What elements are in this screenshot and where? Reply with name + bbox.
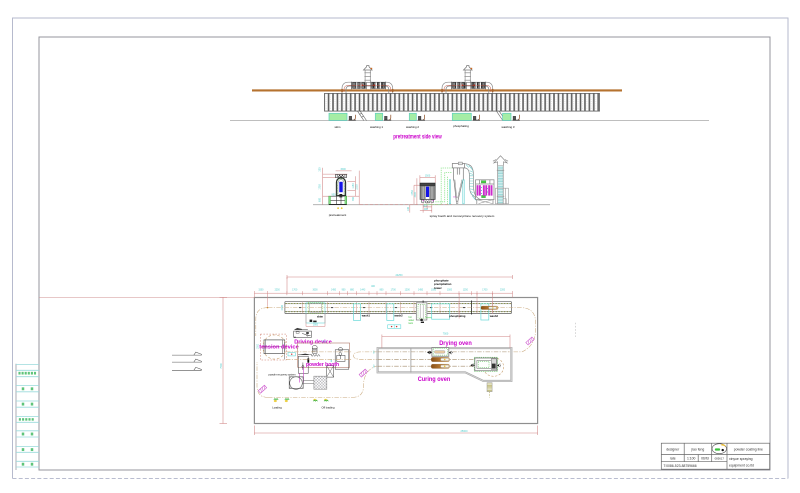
- svg-text:pretreatment: pretreatment: [329, 213, 347, 217]
- svg-text:1500: 1500: [425, 174, 431, 177]
- svg-text:Drying oven: Drying oven: [439, 340, 472, 347]
- svg-text:hot: hot: [409, 316, 413, 319]
- svg-text:900: 900: [424, 208, 429, 211]
- svg-text:washing 2: washing 2: [406, 125, 419, 129]
- svg-text:1750: 1750: [318, 184, 321, 190]
- svg-text:24250: 24250: [396, 274, 404, 277]
- svg-text:2250: 2250: [356, 184, 359, 190]
- svg-text:7500: 7500: [443, 332, 449, 335]
- svg-text:3000: 3000: [313, 325, 319, 327]
- svg-text:wash1: wash1: [361, 313, 371, 317]
- svg-text:7500: 7500: [220, 363, 223, 369]
- svg-text:1:100: 1:100: [687, 457, 696, 461]
- svg-text:06/fd: 06/fd: [701, 457, 709, 461]
- svg-text:1700: 1700: [292, 290, 298, 292]
- svg-text:equipment co.ltd: equipment co.ltd: [729, 464, 754, 468]
- svg-text:powder booth: powder booth: [306, 362, 339, 368]
- svg-text:085617: 085617: [715, 456, 725, 460]
- svg-text:powder coating line: powder coating line: [734, 447, 763, 451]
- svg-text:tower: tower: [434, 286, 443, 290]
- svg-text:1200: 1200: [405, 290, 411, 292]
- svg-text:2200: 2200: [500, 290, 506, 292]
- svg-text:1500: 1500: [414, 192, 417, 198]
- svg-text:skim: skim: [317, 315, 324, 319]
- svg-text:wash2: wash2: [393, 313, 403, 317]
- svg-text:washing 3: washing 3: [501, 125, 514, 129]
- svg-text:xinyue spraying: xinyue spraying: [729, 457, 753, 461]
- svg-text:1500: 1500: [340, 168, 346, 171]
- svg-text:25000: 25000: [461, 430, 469, 433]
- svg-text:spray booth and monocyclone re: spray booth and monocyclone recovery sys…: [430, 214, 495, 218]
- svg-text:1450: 1450: [418, 290, 424, 292]
- svg-text:1500: 1500: [258, 290, 264, 292]
- svg-text:200: 200: [318, 167, 321, 172]
- svg-text:jiao feng: jiao feng: [690, 447, 704, 451]
- svg-text:Off loading: Off loading: [322, 406, 335, 410]
- svg-text:1500: 1500: [447, 290, 453, 292]
- svg-text:1700: 1700: [391, 290, 397, 292]
- svg-text:600: 600: [318, 197, 321, 202]
- svg-text:100: 100: [407, 206, 410, 211]
- svg-text:washing 1: washing 1: [370, 125, 383, 129]
- svg-text:designer: designer: [666, 447, 680, 451]
- svg-text:2250: 2250: [275, 290, 281, 292]
- svg-text:tension device: tension device: [259, 344, 299, 350]
- svg-text:350: 350: [352, 196, 355, 201]
- svg-text:phosphating: phosphating: [449, 314, 465, 318]
- svg-text:wash3: wash3: [489, 314, 499, 318]
- svg-text:1443: 1443: [360, 290, 366, 292]
- svg-text:1250: 1250: [463, 290, 469, 292]
- svg-text:pretreatment side view: pretreatment side view: [393, 134, 442, 141]
- svg-text:skim: skim: [335, 125, 342, 129]
- svg-text:1450: 1450: [331, 290, 337, 292]
- svg-text:powder recovery system: powder recovery system: [268, 373, 295, 376]
- svg-text:1700: 1700: [482, 290, 488, 292]
- svg-text:Loading: Loading: [272, 406, 282, 410]
- svg-text:950: 950: [332, 193, 337, 196]
- svg-text:T:0086-523-88759666: T:0086-523-88759666: [664, 464, 697, 468]
- svg-text:rate: rate: [670, 457, 676, 461]
- svg-text:water: water: [409, 319, 415, 322]
- svg-text:3000: 3000: [312, 290, 318, 292]
- svg-text:Curing oven: Curing oven: [418, 376, 451, 383]
- svg-text:phosphating: phosphating: [453, 124, 469, 128]
- svg-text:1150: 1150: [352, 183, 355, 189]
- svg-text:Driving device: Driving device: [294, 339, 332, 345]
